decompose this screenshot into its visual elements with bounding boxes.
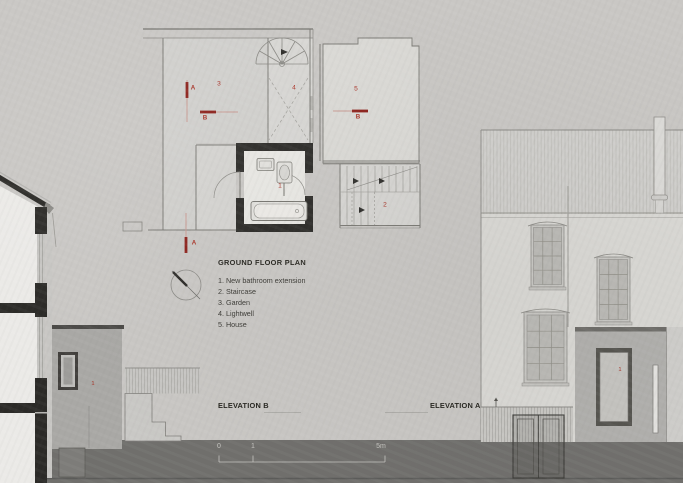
scale-label-5m: 5m bbox=[376, 443, 386, 450]
drawing-linework bbox=[0, 0, 683, 483]
floor-plan-drawing bbox=[123, 29, 420, 232]
section-marker-b-right: B bbox=[356, 114, 360, 121]
below-grade-footing bbox=[59, 448, 85, 477]
elevation-a-label: ELEVATION A bbox=[430, 401, 481, 410]
soil-pipe bbox=[653, 365, 658, 433]
elevation-a-drawing bbox=[481, 117, 683, 478]
extension-elevation-a bbox=[575, 327, 683, 442]
elevation-b-label: ELEVATION B bbox=[218, 401, 269, 410]
scale-label-1: 1 bbox=[251, 443, 255, 450]
legend-item-5: 5. House bbox=[218, 320, 306, 331]
window-middle bbox=[594, 254, 633, 325]
stepped-garden-wall bbox=[125, 394, 181, 442]
fence-hatch bbox=[125, 368, 200, 394]
section-marker-b-left: B bbox=[203, 115, 207, 122]
elevation-a-extension-tag: 1 bbox=[618, 367, 621, 373]
room-label-lightwell: 4 bbox=[292, 85, 296, 92]
section-marker-a-bottom: A bbox=[192, 240, 196, 247]
extension-elevation-b bbox=[49, 325, 124, 449]
plan-title: GROUND FLOOR PLAN bbox=[218, 258, 306, 267]
room-label-staircase: 2 bbox=[383, 202, 387, 209]
room-label-bathroom: 1 bbox=[278, 183, 282, 190]
window-upper-left bbox=[528, 222, 567, 290]
legend-item-4: 4. Lightwell bbox=[218, 309, 306, 320]
house-section-drawing bbox=[0, 171, 56, 483]
legend-item-1: 1. New bathroom extension bbox=[218, 276, 306, 287]
legend-item-3: 3. Garden bbox=[218, 298, 306, 309]
plan-legend: 1. New bathroom extension 2. Staircase 3… bbox=[218, 276, 306, 331]
legend-item-2: 2. Staircase bbox=[218, 287, 306, 298]
chimney-flue bbox=[652, 117, 668, 213]
architectural-drawing-sheet: GROUND FLOOR PLAN 1. New bathroom extens… bbox=[0, 0, 683, 483]
elevation-b-extension-tag: 1 bbox=[91, 381, 94, 387]
room-label-garden: 3 bbox=[217, 81, 221, 88]
garden-gate bbox=[513, 415, 564, 478]
room-label-house: 5 bbox=[354, 86, 358, 93]
north-arrow bbox=[171, 270, 201, 300]
window-lower-left bbox=[521, 309, 570, 386]
scale-label-0: 0 bbox=[217, 443, 221, 450]
section-marker-a-top: A bbox=[191, 85, 195, 92]
